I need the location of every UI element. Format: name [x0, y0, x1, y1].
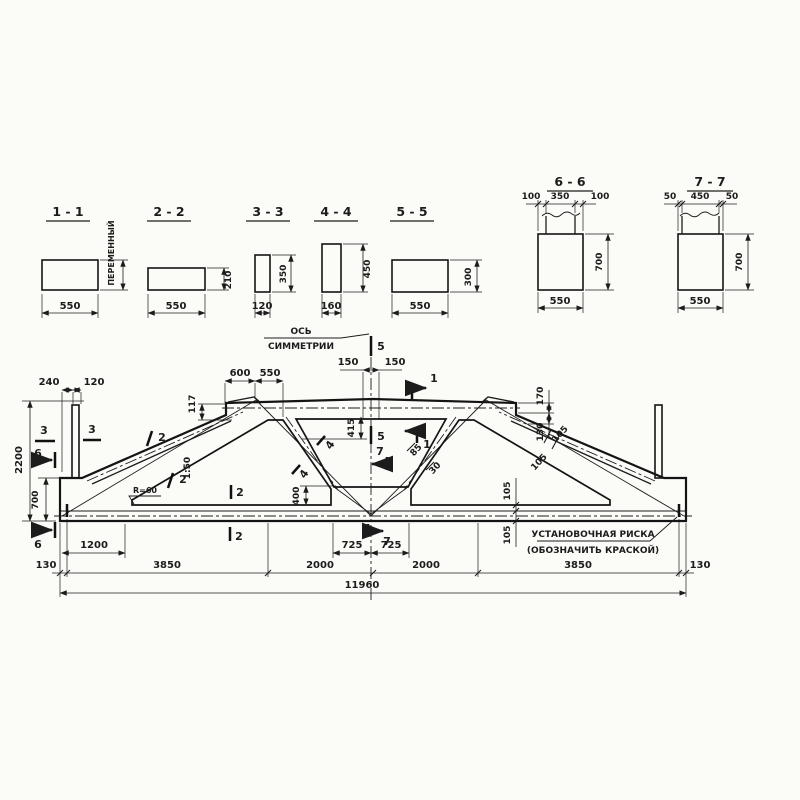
dim-label: 725	[342, 540, 363, 551]
section-4-4: 4 - 4 160 450	[314, 204, 373, 318]
axis-label-line1: ОСЬ	[290, 327, 311, 337]
section-shape	[322, 244, 341, 292]
dim-width: 120	[252, 301, 273, 312]
section-title: 3 - 3	[252, 204, 283, 219]
dim-label: 600	[230, 368, 251, 379]
cut-label: 2	[158, 431, 166, 444]
note-line1: УСТАНОВОЧНАЯ РИСКА	[531, 530, 654, 540]
dim-width: 550	[550, 296, 571, 307]
cut-mark-7-upper: 7	[372, 445, 387, 470]
dim-label: 3850	[153, 560, 181, 571]
dim-label: 105	[503, 526, 513, 545]
dim-150-150: 150 150	[338, 357, 406, 419]
dim-label: 3850	[564, 560, 592, 571]
dim-label: 130	[690, 560, 711, 571]
truss-technical-drawing: 1 - 1 550 ПЕРЕМЕННЫЙ 2 - 2 550 210 3 - 3…	[0, 0, 800, 800]
radius-text: R=60	[133, 486, 157, 495]
cut-label: 2	[235, 530, 243, 543]
dim-top-right: 50	[726, 192, 739, 202]
section-shape	[538, 234, 583, 290]
section-5-5: 5 - 5 550 300	[390, 204, 482, 318]
cut-label: 3	[40, 424, 48, 437]
truss-elevation: ОСЬ СИММЕТРИИ 150 150 600 550 240 120	[14, 327, 710, 602]
cut-mark-5-lower: 5	[371, 426, 385, 444]
dim-total-length: 11960	[60, 580, 686, 593]
dim-105-vertical: 105 105	[503, 478, 519, 547]
dim-label: 130	[36, 560, 57, 571]
dim-label: 85	[409, 443, 425, 459]
dim-600-550: 600 550	[225, 368, 283, 417]
dim-label: 117	[188, 395, 198, 414]
dim-top-left: 50	[664, 192, 677, 202]
section-6-6: 6 - 6 100 350 100 700 550	[522, 174, 614, 313]
truss-outline	[60, 399, 686, 521]
dim-width: 550	[690, 296, 711, 307]
dim-label: 1200	[80, 540, 108, 551]
cut-label: 5	[377, 430, 385, 443]
dim-label: 240	[39, 377, 60, 388]
section-title: 4 - 4	[320, 204, 352, 219]
note-line2: (ОБОЗНАЧИТЬ КРАСКОЙ)	[527, 544, 659, 556]
dim-width: 550	[60, 301, 81, 312]
axis-label-line2: СИММЕТРИИ	[268, 342, 334, 352]
dim-width: 160	[321, 301, 342, 312]
radius-label: R=60	[129, 486, 161, 504]
cut-label: 6	[34, 447, 42, 460]
dim-label: 130	[536, 423, 546, 442]
section-3-3: 3 - 3 120 350	[246, 204, 296, 318]
cut-label: 6	[34, 538, 42, 551]
cut-mark-1-upper: 1	[412, 372, 438, 399]
dim-top-mid: 350	[551, 192, 570, 202]
dim-top-left: 100	[522, 192, 541, 202]
cut-label: 2	[236, 486, 244, 499]
cut-label: 7	[376, 445, 384, 458]
dim-height: 700	[595, 253, 605, 272]
cut-mark-3-pair: 3 3	[35, 423, 101, 441]
dim-height: 350	[279, 265, 289, 284]
dim-label: 415	[347, 419, 357, 438]
dim-label: 2000	[306, 560, 334, 571]
cut-label: 4	[323, 438, 338, 452]
dim-label: 2000	[412, 560, 440, 571]
left-post	[72, 405, 79, 478]
dim-label: 400	[292, 487, 302, 506]
dim-height-variable: ПЕРЕМЕННЫЙ	[105, 220, 116, 285]
member-axis-zigzag	[62, 400, 684, 516]
axis-of-symmetry-label: ОСЬ СИММЕТРИИ	[264, 327, 369, 352]
cut-mark-6-lower: 6	[34, 522, 55, 551]
dim-top-mid: 450	[691, 192, 710, 202]
cut-mark-6-upper: 6	[34, 447, 55, 468]
dim-label: 550	[260, 368, 281, 379]
dim-1200: 1200	[62, 524, 125, 558]
dim-label: 11960	[345, 580, 380, 591]
dim-height: 300	[464, 268, 474, 287]
cut-label: 3	[88, 423, 96, 436]
section-title: 1 - 1	[52, 204, 83, 219]
section-1-1: 1 - 1 550 ПЕРЕМЕННЫЙ	[42, 204, 128, 318]
dim-height: 210	[224, 271, 234, 290]
section-title: 5 - 5	[396, 204, 427, 219]
dim-height: 450	[363, 260, 373, 279]
cut-label: 1	[423, 438, 431, 451]
cut-label: 1	[430, 372, 438, 385]
dim-top-right: 100	[591, 192, 610, 202]
cut-mark-5-upper: 5	[371, 336, 385, 356]
dim-label: 700	[31, 491, 41, 510]
section-title: 6 - 6	[554, 174, 586, 189]
dim-label: 120	[84, 377, 105, 388]
break-line	[680, 212, 719, 217]
section-shape	[255, 255, 270, 292]
dim-label: 105	[503, 482, 513, 501]
dim-width: 550	[410, 301, 431, 312]
dim-label: 150	[338, 357, 359, 368]
break-line	[542, 212, 580, 217]
dim-width: 550	[166, 301, 187, 312]
section-2-2: 2 - 2 550 210	[147, 204, 234, 318]
section-shape	[678, 234, 723, 290]
dim-400: 400	[292, 486, 333, 505]
section-shape	[42, 260, 98, 290]
installation-note: УСТАНОВОЧНАЯ РИСКА (ОБОЗНАЧИТЬ КРАСКОЙ)	[527, 517, 677, 556]
right-post	[655, 405, 662, 478]
section-title: 7 - 7	[694, 174, 725, 189]
dim-label: 170	[536, 387, 546, 406]
section-shape	[392, 260, 448, 292]
cut-mark-2-chord: 2 2	[230, 485, 244, 543]
section-7-7: 7 - 7 50 450 50 700 550	[664, 174, 754, 313]
dim-415: 415	[302, 417, 367, 439]
cut-label: 2	[179, 473, 187, 486]
blueprint-page: 1 - 1 550 ПЕРЕМЕННЫЙ 2 - 2 550 210 3 - 3…	[0, 0, 800, 800]
dim-label: 2200	[14, 446, 25, 474]
section-shape	[148, 268, 205, 290]
dim-label: 725	[381, 540, 402, 551]
dim-170-130: 170 130	[518, 387, 554, 442]
section-title: 2 - 2	[153, 204, 184, 219]
dim-label: 150	[385, 357, 406, 368]
dim-height: 700	[735, 253, 745, 272]
dim-label: 105	[550, 424, 570, 445]
cut-label: 4	[297, 467, 312, 481]
cut-label: 5	[377, 340, 385, 353]
